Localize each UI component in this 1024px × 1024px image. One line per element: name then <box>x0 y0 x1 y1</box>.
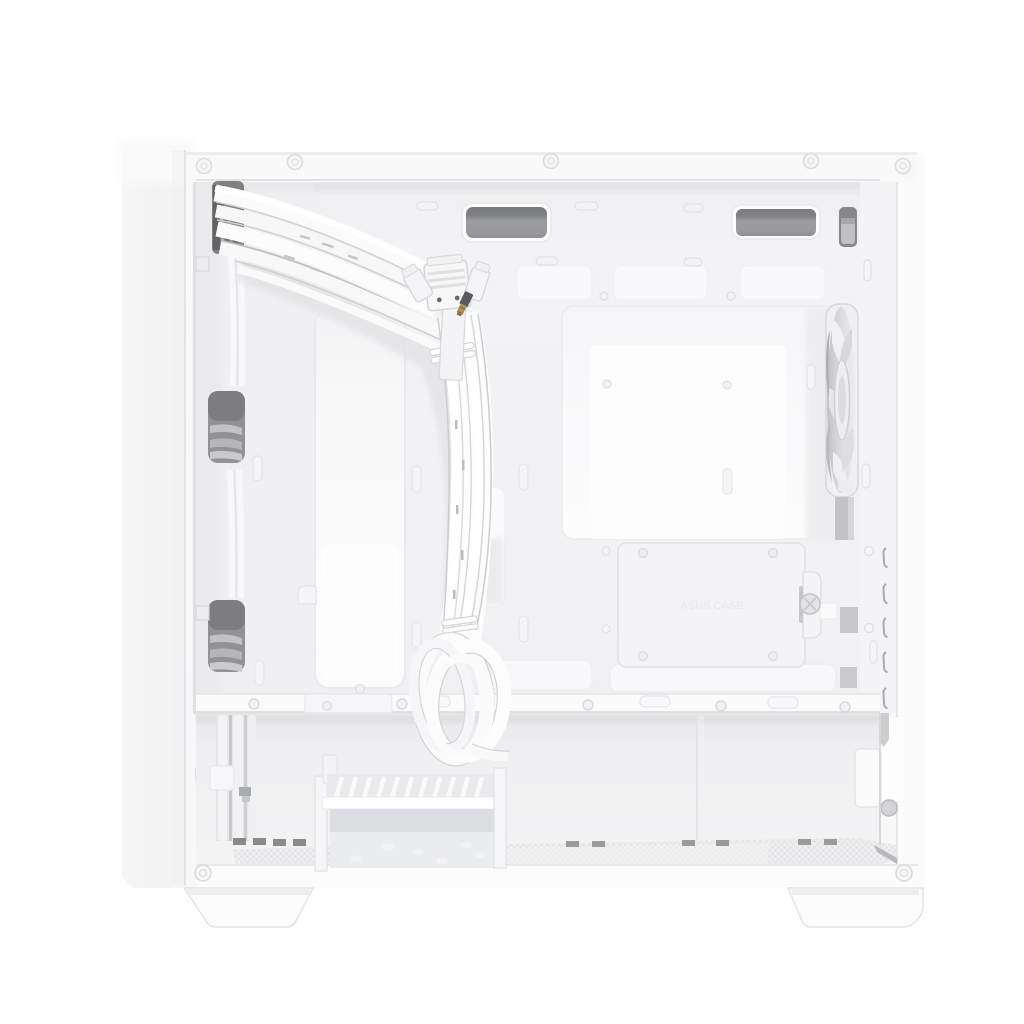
svg-text:ASUS CASE: ASUS CASE <box>681 600 744 612</box>
